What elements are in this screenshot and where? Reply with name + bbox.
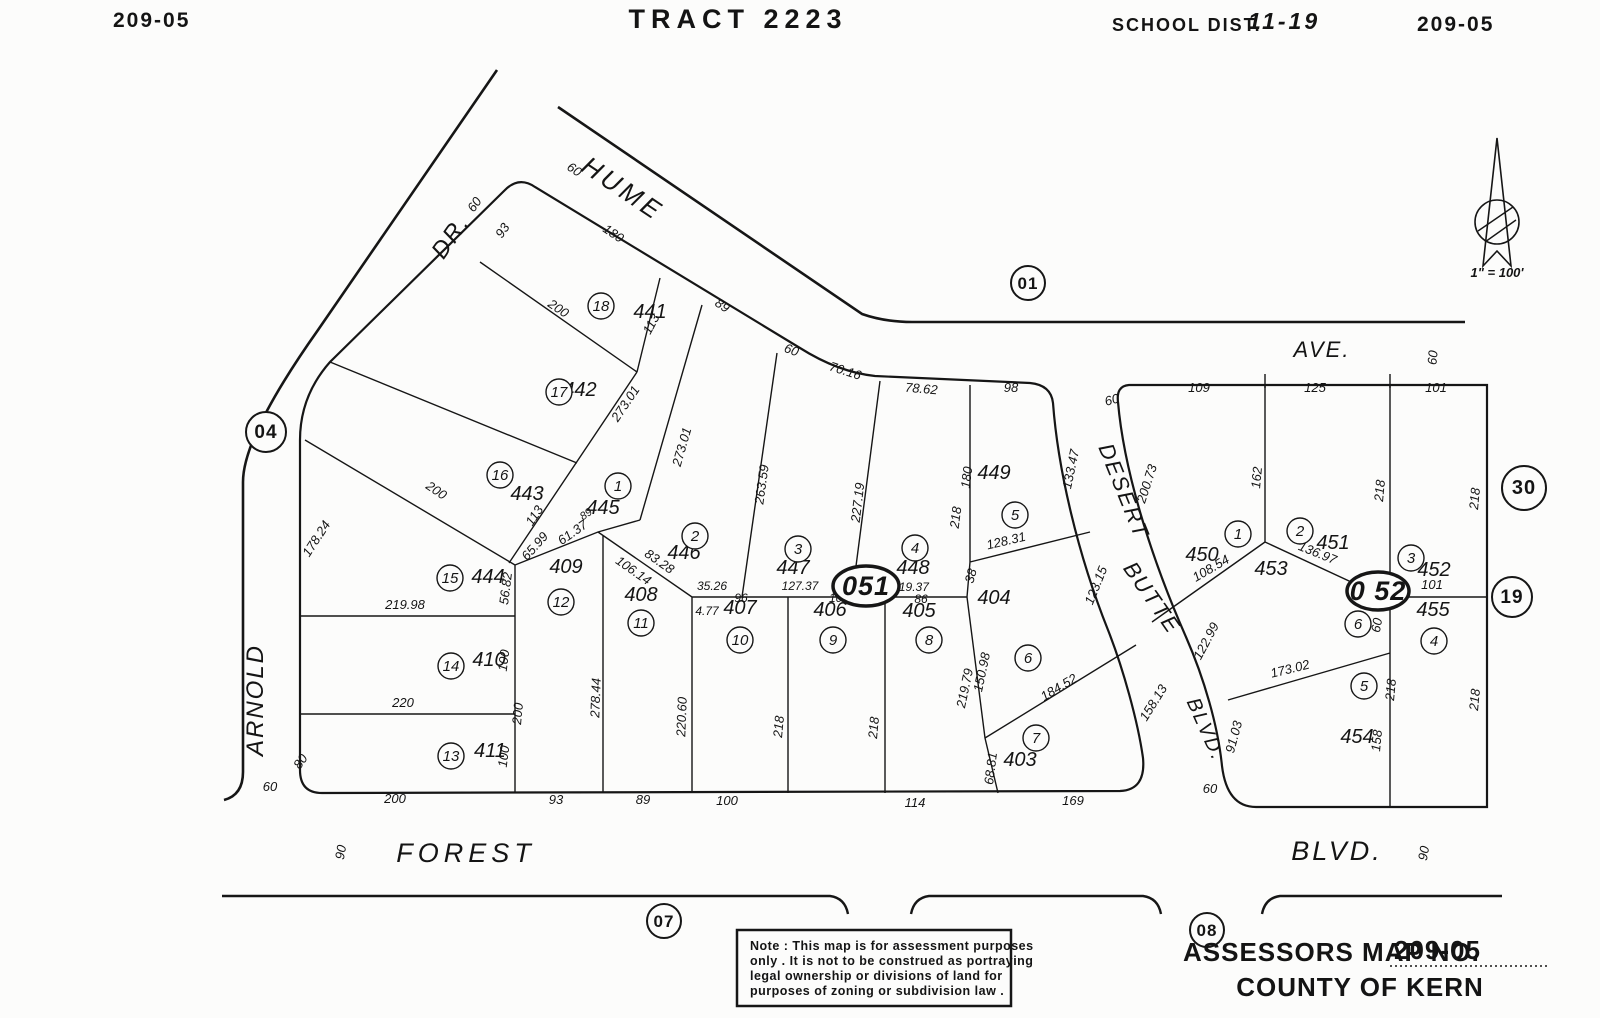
lot-number: 16 — [492, 467, 509, 484]
school-district-label: SCHOOL DIST. — [1112, 15, 1262, 35]
adjacent-sheet-number: 30 — [1512, 477, 1536, 499]
parcel-label: 455 — [1416, 599, 1450, 621]
parcel-label: 453 — [1254, 558, 1287, 580]
dim-label: 220.60 — [673, 696, 689, 738]
dim-label: 178.24 — [299, 518, 333, 560]
parcel-label: 443 — [510, 483, 543, 505]
dim-label: 200 — [509, 701, 526, 726]
dim-label: 122.99 — [1190, 620, 1222, 662]
lot-number: 4 — [911, 540, 919, 557]
dim-label: 91.03 — [1222, 718, 1245, 754]
block-number: 0 52 — [1350, 576, 1407, 606]
street-label: FOREST — [396, 838, 536, 868]
dim-label: 180 — [600, 221, 627, 246]
street-label: HUME — [576, 150, 670, 227]
dim-label: 101 — [1425, 380, 1447, 395]
dim-label: 218 — [1382, 677, 1399, 702]
block-number: 051 — [842, 571, 890, 601]
dim-label: 219.98 — [384, 597, 426, 612]
dim-label: 86 — [914, 592, 928, 606]
adjacent-sheet-number: 01 — [1018, 274, 1039, 293]
lot-number: 7 — [1032, 730, 1041, 747]
lot-number: 2 — [690, 528, 700, 545]
street-label: AVE. — [1292, 337, 1351, 362]
title-block: 209-05 TRACT 2223 SCHOOL DIST. 11-19 209… — [113, 4, 1494, 36]
dim-label: 218 — [770, 714, 787, 739]
dim-label: 100 — [495, 648, 513, 672]
dim-label: 273.01 — [607, 383, 642, 425]
lot-number: 6 — [1354, 616, 1363, 633]
dim-label: 100 — [716, 793, 738, 808]
dim-label: 158 — [1368, 728, 1385, 752]
note-box: Note : This map is for assessment purpos… — [737, 930, 1034, 1006]
dim-label: 218 — [1466, 687, 1483, 712]
parcel-label: 409 — [549, 556, 582, 578]
parcel-label: 408 — [624, 584, 657, 606]
adjacent-sheet-number: 04 — [254, 422, 277, 443]
dim-label: 263.59 — [751, 464, 772, 506]
dim-label: 114 — [905, 795, 926, 810]
lot-number: 6 — [1024, 650, 1033, 667]
school-district-value: 11-19 — [1248, 8, 1320, 34]
dim-label: 200 — [383, 791, 406, 806]
lot-number: 9 — [829, 632, 838, 649]
street-label: BLVD. — [1182, 695, 1229, 765]
dim-label: 200 — [544, 295, 572, 321]
lot-number: 1 — [614, 478, 622, 495]
lot-number: 14 — [443, 658, 460, 675]
dim-label: 65.99 — [518, 529, 551, 563]
dim-label: 218 — [1466, 486, 1483, 511]
parcel-label: 403 — [1003, 749, 1036, 771]
scale-text: 1" = 100' — [1471, 265, 1525, 280]
sheet-number-right: 209-05 — [1417, 13, 1494, 36]
dim-label: 89 — [636, 792, 650, 807]
assessors-map-number: 209-05 — [1394, 935, 1481, 965]
lot-number: 15 — [442, 570, 459, 587]
lot-number: 10 — [732, 632, 749, 649]
dim-label: 38 — [962, 566, 980, 585]
lot-number: 17 — [551, 384, 568, 401]
note-line: legal ownership or divisions of land for — [750, 969, 1003, 983]
dim-label: 100 — [495, 744, 513, 768]
adjacent-sheet-number: 07 — [654, 912, 675, 931]
dim-label: 96 — [734, 591, 748, 605]
note-line: Note : This map is for assessment purpos… — [750, 939, 1034, 953]
dim-label: 218 — [947, 505, 965, 530]
dim-label: 273.01 — [669, 426, 695, 469]
lot-number: 18 — [593, 298, 610, 315]
lot-number: 4 — [1430, 633, 1438, 650]
sheet-number-left: 209-05 — [113, 9, 190, 32]
dim-label: 200.73 — [1133, 462, 1160, 506]
dim-label: 90 — [332, 843, 349, 861]
dim-label: 98 — [1004, 380, 1019, 395]
lot-number: 2 — [1295, 523, 1305, 540]
street-label: DR. — [426, 210, 475, 264]
dim-label: 133.47 — [1059, 447, 1082, 490]
north-arrow-icon — [1475, 138, 1519, 266]
dim-label: 169 — [1062, 793, 1084, 808]
street-forest-south-left — [222, 896, 848, 914]
footer-title-block: ASSESSORS MAP NO. 209-05 COUNTY OF KERN — [1183, 935, 1548, 1002]
note-line: only . It is not to be construed as port… — [750, 954, 1033, 968]
lot-number: 8 — [925, 632, 934, 649]
street-forest-south-middle — [911, 896, 1161, 914]
dim-label: 4.77 — [695, 604, 720, 618]
dim-label: 109 — [1188, 380, 1210, 395]
dim-label: 80 — [290, 751, 311, 772]
adjacent-sheet-number: 19 — [1500, 587, 1523, 608]
lot-number: 5 — [1011, 507, 1020, 524]
dim-label: 70.16 — [828, 359, 864, 384]
dim-label: 89 — [712, 295, 732, 316]
dim-label: 125 — [1304, 380, 1326, 395]
dim-label: 35.26 — [697, 579, 727, 593]
lot-number: 3 — [1407, 550, 1416, 567]
dim-label: 200 — [422, 477, 450, 503]
dim-label: 218 — [1371, 478, 1388, 503]
street-label: BUTTE — [1118, 557, 1186, 639]
dim-label: 101 — [1421, 577, 1443, 592]
county-label: COUNTY OF KERN — [1236, 972, 1484, 1002]
street-label: ARNOLD — [242, 644, 269, 758]
dim-label: 127.37 — [782, 579, 820, 593]
dim-label: 90 — [1415, 844, 1432, 862]
dim-label: 56.82 — [496, 571, 515, 606]
dim-label: 227.19 — [848, 482, 868, 524]
lot-number: 5 — [1360, 678, 1369, 695]
dim-label: 60 — [1203, 781, 1218, 796]
dim-label: 93 — [492, 220, 513, 241]
dim-label: 218 — [865, 715, 882, 740]
lot-number: 13 — [443, 748, 460, 765]
dim-label: 68.81 — [981, 751, 1000, 785]
parcel-label: 449 — [977, 462, 1010, 484]
dim-label: 162 — [1248, 465, 1265, 489]
block-outlines — [300, 182, 1487, 807]
dim-label: 278.44 — [587, 678, 603, 719]
dim-label: 60 — [1424, 349, 1440, 365]
lot-number: 1 — [1234, 526, 1242, 543]
block-052-outline — [1118, 385, 1487, 807]
lot-number: 11 — [633, 615, 649, 632]
dim-label: 180 — [958, 465, 976, 489]
dim-label: 60 — [782, 340, 801, 359]
map-labels-layer: HUMEDR.AVE.ARNOLDDESERTBUTTEBLVD.FORESTB… — [242, 150, 1483, 868]
lot-number: 12 — [553, 594, 570, 611]
lot-number: 3 — [794, 541, 803, 558]
dim-label: 158.13 — [1136, 681, 1170, 723]
dim-label: 113 — [522, 502, 546, 528]
dim-label: 184.52 — [1038, 670, 1080, 704]
parcel-label: 404 — [977, 587, 1010, 609]
assessor-map-canvas: 209-05 TRACT 2223 SCHOOL DIST. 11-19 209… — [0, 0, 1600, 1018]
dim-label: 78.62 — [905, 380, 939, 398]
dim-label: 60 — [263, 779, 278, 794]
dim-label: 220 — [391, 695, 414, 710]
dim-label: 93 — [549, 792, 564, 807]
note-line: purposes of zoning or subdivision law . — [750, 984, 1004, 998]
street-forest-south-right — [1262, 896, 1502, 914]
street-label: BLVD. — [1291, 836, 1383, 866]
tract-title: TRACT 2223 — [628, 4, 847, 34]
assessor-map-page: 209-05 TRACT 2223 SCHOOL DIST. 11-19 209… — [0, 0, 1600, 1018]
